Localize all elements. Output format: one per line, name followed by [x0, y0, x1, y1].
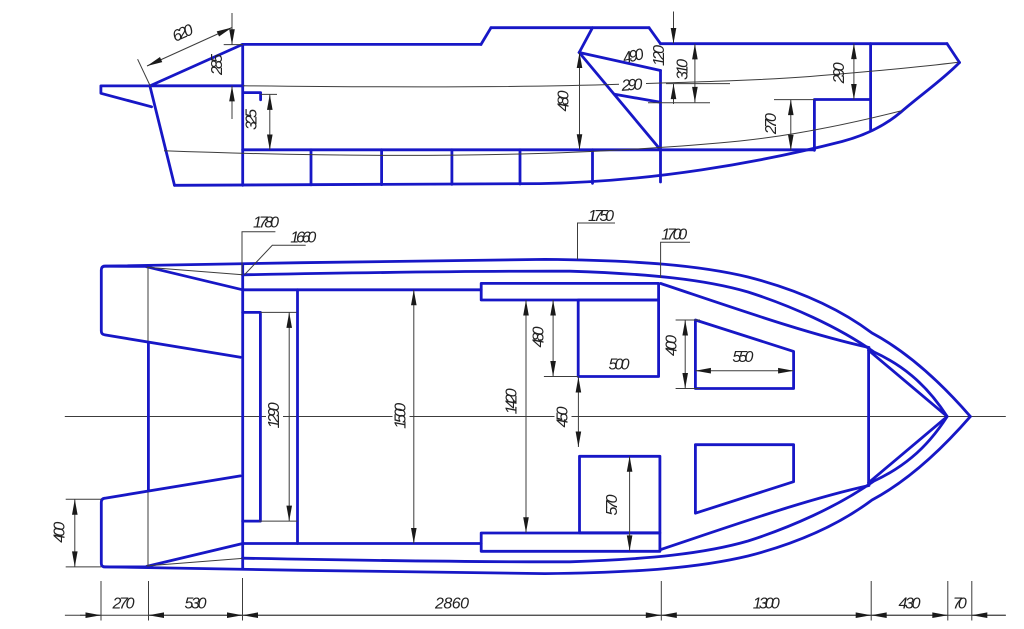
svg-text:325: 325	[244, 109, 261, 130]
svg-text:450: 450	[555, 406, 572, 427]
svg-text:290: 290	[831, 62, 848, 84]
svg-text:550: 550	[732, 349, 753, 366]
svg-text:500: 500	[609, 357, 630, 374]
svg-text:285: 285	[209, 54, 226, 76]
svg-text:2860: 2860	[434, 596, 469, 613]
svg-text:270: 270	[763, 113, 780, 135]
svg-text:70: 70	[953, 596, 967, 613]
svg-text:1780: 1780	[253, 215, 279, 232]
svg-text:1300: 1300	[753, 596, 780, 613]
svg-text:1420: 1420	[504, 388, 521, 414]
svg-text:1660: 1660	[290, 230, 316, 247]
svg-text:400: 400	[664, 335, 681, 356]
svg-text:1290: 1290	[266, 402, 283, 428]
svg-text:1500: 1500	[393, 403, 410, 429]
svg-text:290: 290	[620, 76, 643, 94]
svg-text:430: 430	[899, 596, 921, 613]
svg-text:400: 400	[52, 522, 69, 543]
svg-text:1700: 1700	[661, 227, 687, 244]
svg-text:270: 270	[112, 596, 135, 613]
svg-text:310: 310	[675, 59, 692, 80]
svg-text:120: 120	[651, 45, 668, 66]
svg-text:530: 530	[185, 596, 207, 613]
svg-text:480: 480	[556, 90, 573, 111]
svg-text:1750: 1750	[588, 208, 614, 225]
svg-text:480: 480	[531, 326, 548, 347]
svg-text:570: 570	[604, 494, 621, 515]
